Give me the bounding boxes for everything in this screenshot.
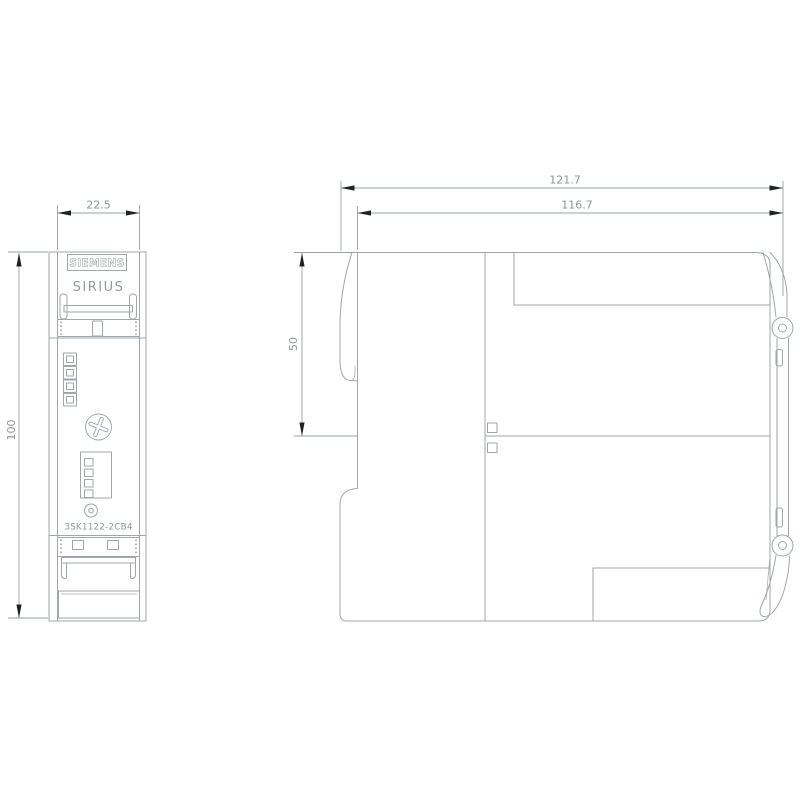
din-clip-bottom bbox=[760, 535, 793, 617]
dim-total-depth-value: 121.7 bbox=[549, 174, 581, 187]
front-view: SIEMENS SIRIUS bbox=[49, 252, 146, 621]
dimension-drawing: SIEMENS SIRIUS bbox=[0, 0, 800, 800]
bottom-clip-left-post bbox=[62, 563, 67, 579]
side-view bbox=[340, 253, 793, 622]
dim-arrow-bottom bbox=[299, 423, 304, 437]
led-square bbox=[85, 469, 94, 477]
terminal-bottom-slot-right bbox=[108, 541, 119, 550]
bottom-release-clip bbox=[62, 558, 136, 579]
test-point-inner bbox=[89, 508, 94, 513]
terminal-block-bottom bbox=[58, 538, 140, 557]
dim-total-depth: 121.7 bbox=[341, 174, 783, 297]
din-clip-plate bbox=[776, 339, 789, 537]
test-point-outer bbox=[85, 504, 98, 517]
part-number-label: 3SK1122-2CB4 bbox=[64, 523, 132, 533]
siemens-logo-text: SIEMENS bbox=[69, 258, 124, 270]
bottom-cover-outer bbox=[59, 591, 140, 618]
dim-upper-depth-value: 50 bbox=[287, 337, 300, 351]
dim-height-value: 100 bbox=[5, 420, 18, 441]
led-square bbox=[85, 459, 94, 467]
led-square bbox=[85, 490, 94, 498]
dim-arrow-left bbox=[341, 185, 355, 190]
terminal-block-top-slot bbox=[93, 321, 103, 336]
top-release-clip bbox=[60, 294, 137, 319]
dim-arrow-left bbox=[58, 210, 72, 215]
terminal-block-top-body bbox=[58, 320, 140, 337]
dim-body-depth-value: 116.7 bbox=[561, 199, 593, 212]
sirius-label: SIRIUS bbox=[73, 280, 125, 295]
din-bottom-pivot-hole bbox=[779, 542, 787, 550]
led-window bbox=[81, 452, 112, 498]
din-top-lever-outer bbox=[770, 253, 787, 318]
din-clip-top bbox=[763, 253, 793, 339]
terminal-square bbox=[64, 367, 77, 380]
din-top-pivot bbox=[772, 318, 793, 339]
terminal-bottom-slot-left bbox=[73, 541, 84, 550]
dim-arrow-right bbox=[126, 210, 140, 215]
mid-square-bottom bbox=[488, 443, 498, 453]
dim-arrow-left bbox=[358, 210, 372, 215]
terminal-square-inner bbox=[67, 370, 74, 377]
dim-front-width-value: 22.5 bbox=[86, 199, 111, 212]
terminal-square-inner bbox=[67, 356, 74, 363]
side-outline bbox=[340, 253, 770, 622]
test-point bbox=[85, 504, 98, 517]
din-top-pivot-hole bbox=[779, 324, 787, 332]
bottom-clip-right-post bbox=[131, 563, 136, 579]
terminal-square-inner bbox=[67, 383, 74, 390]
dim-front-width: 22.5 bbox=[58, 199, 140, 251]
dim-arrow-top bbox=[299, 253, 304, 267]
terminal-block-bottom-body bbox=[58, 538, 140, 557]
dim-body-depth: 116.7 bbox=[358, 199, 784, 251]
dim-arrow-right bbox=[770, 185, 784, 190]
top-clip-bar bbox=[64, 306, 133, 313]
din-bottom-lever bbox=[760, 556, 789, 617]
upper-cover-hook bbox=[351, 366, 355, 381]
dim-height: 100 bbox=[5, 252, 48, 618]
terminal-squares bbox=[64, 353, 77, 406]
drawing-canvas: SIEMENS SIRIUS bbox=[0, 0, 800, 800]
din-bottom-pivot bbox=[772, 535, 793, 556]
dim-upper-depth: 50 bbox=[287, 253, 357, 437]
terminal-square bbox=[64, 394, 77, 407]
bottom-cover bbox=[59, 591, 140, 618]
dim-arrow-top bbox=[16, 253, 21, 267]
screw-icon bbox=[86, 414, 112, 440]
terminal-block-top bbox=[58, 320, 140, 337]
terminal-square-inner bbox=[67, 397, 74, 404]
bottom-clip-bar bbox=[62, 558, 136, 564]
din-bottom-lever-inner bbox=[766, 556, 770, 600]
terminal-square bbox=[64, 380, 77, 393]
terminal-square bbox=[64, 353, 77, 366]
led-square bbox=[85, 480, 94, 488]
siemens-logo: SIEMENS bbox=[68, 255, 127, 271]
dim-arrow-right bbox=[770, 210, 784, 215]
mid-square-top bbox=[488, 423, 498, 433]
dim-arrow-bottom bbox=[16, 605, 21, 619]
